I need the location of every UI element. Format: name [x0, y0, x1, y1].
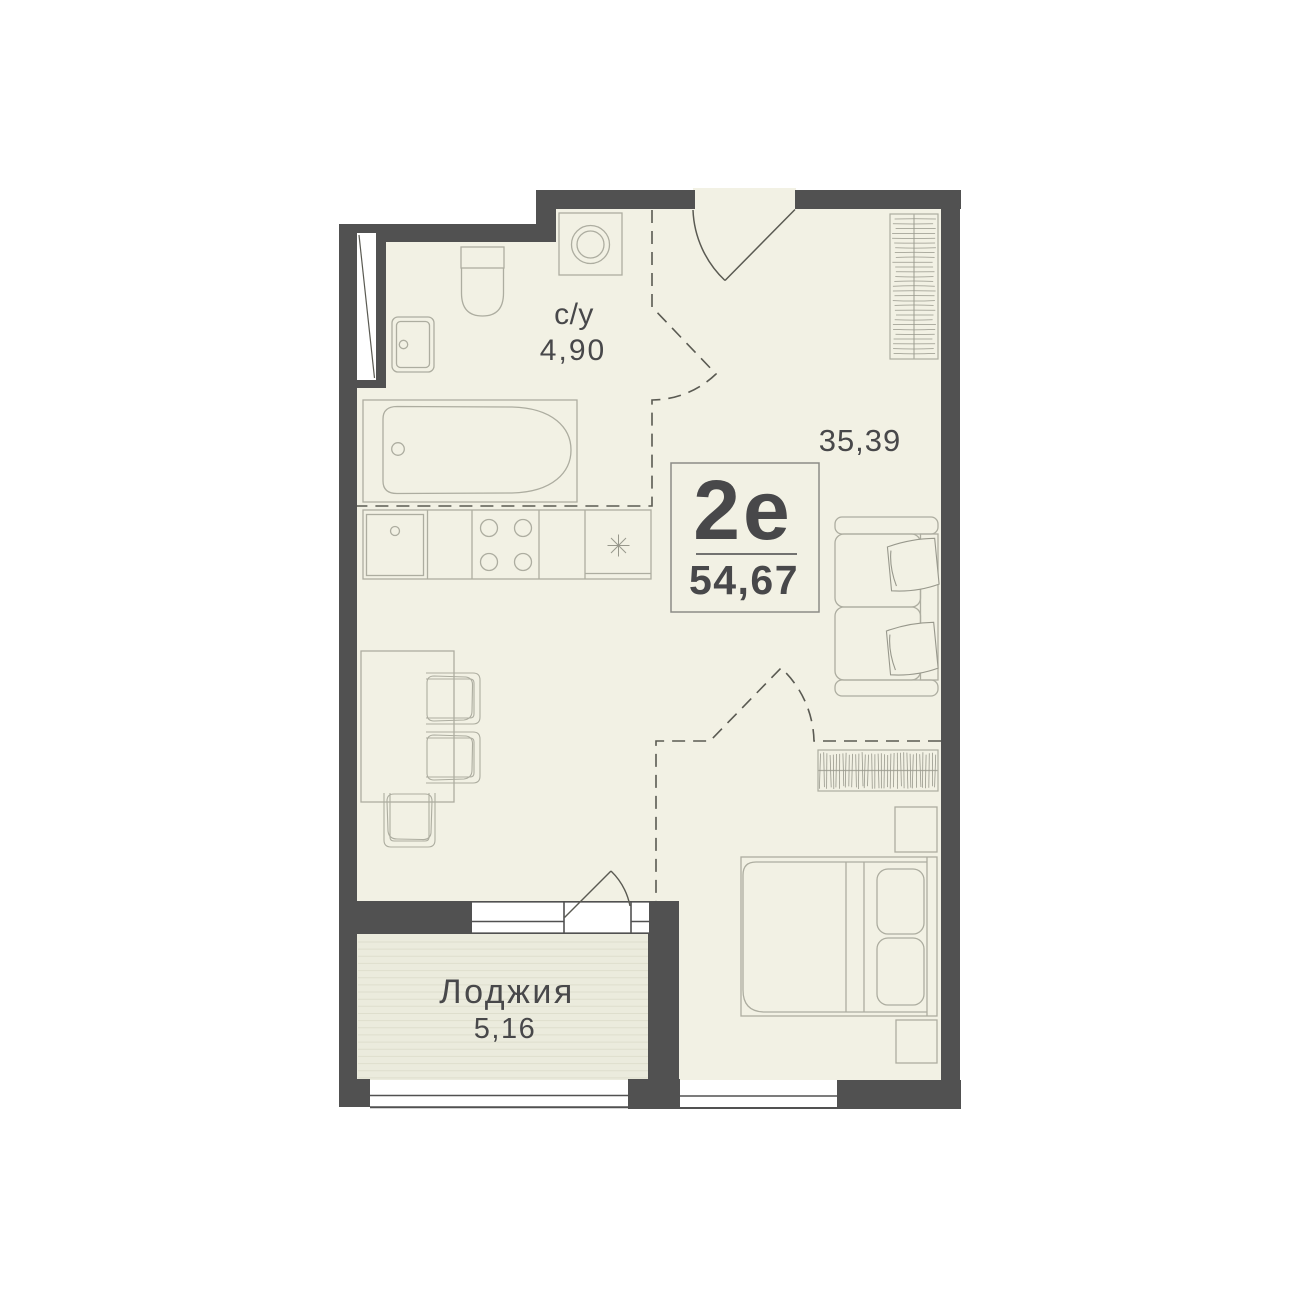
svg-text:Лоджия: Лоджия — [439, 973, 574, 1011]
svg-text:5,16: 5,16 — [474, 1013, 536, 1045]
svg-text:2е: 2е — [693, 463, 792, 557]
svg-text:4,90: 4,90 — [540, 334, 606, 367]
svg-text:с/у: с/у — [554, 298, 594, 331]
svg-text:35,39: 35,39 — [819, 423, 902, 458]
svg-text:54,67: 54,67 — [689, 557, 799, 603]
